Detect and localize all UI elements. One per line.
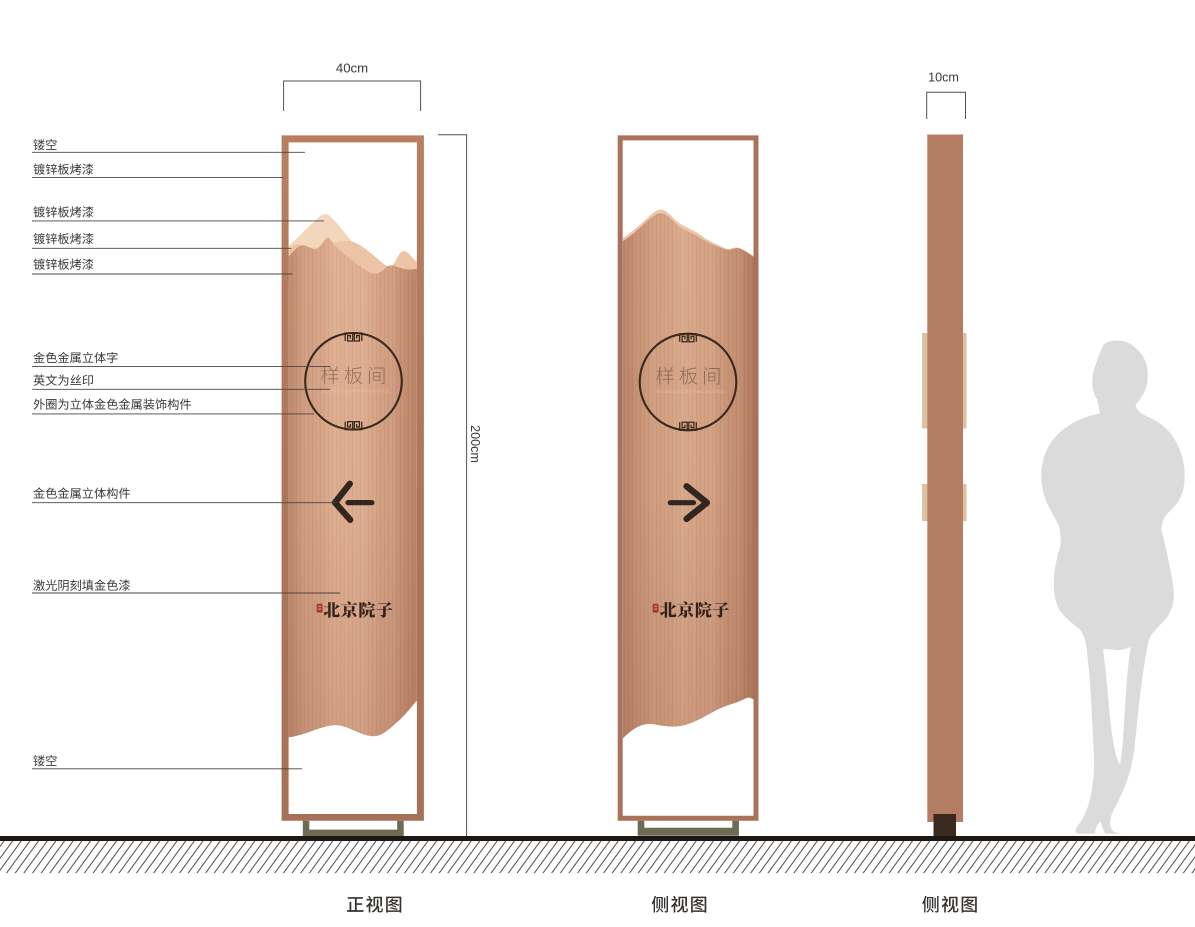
svg-text:BEIJING COURTYARD SAMPLE: BEIJING COURTYARD SAMPLE <box>322 389 390 394</box>
svg-text:40cm: 40cm <box>336 61 368 76</box>
svg-text:10cm: 10cm <box>928 71 959 85</box>
svg-text:BEIJING COURTYARD SAMPLE: BEIJING COURTYARD SAMPLE <box>656 389 724 394</box>
svg-text:200cm: 200cm <box>468 425 482 463</box>
